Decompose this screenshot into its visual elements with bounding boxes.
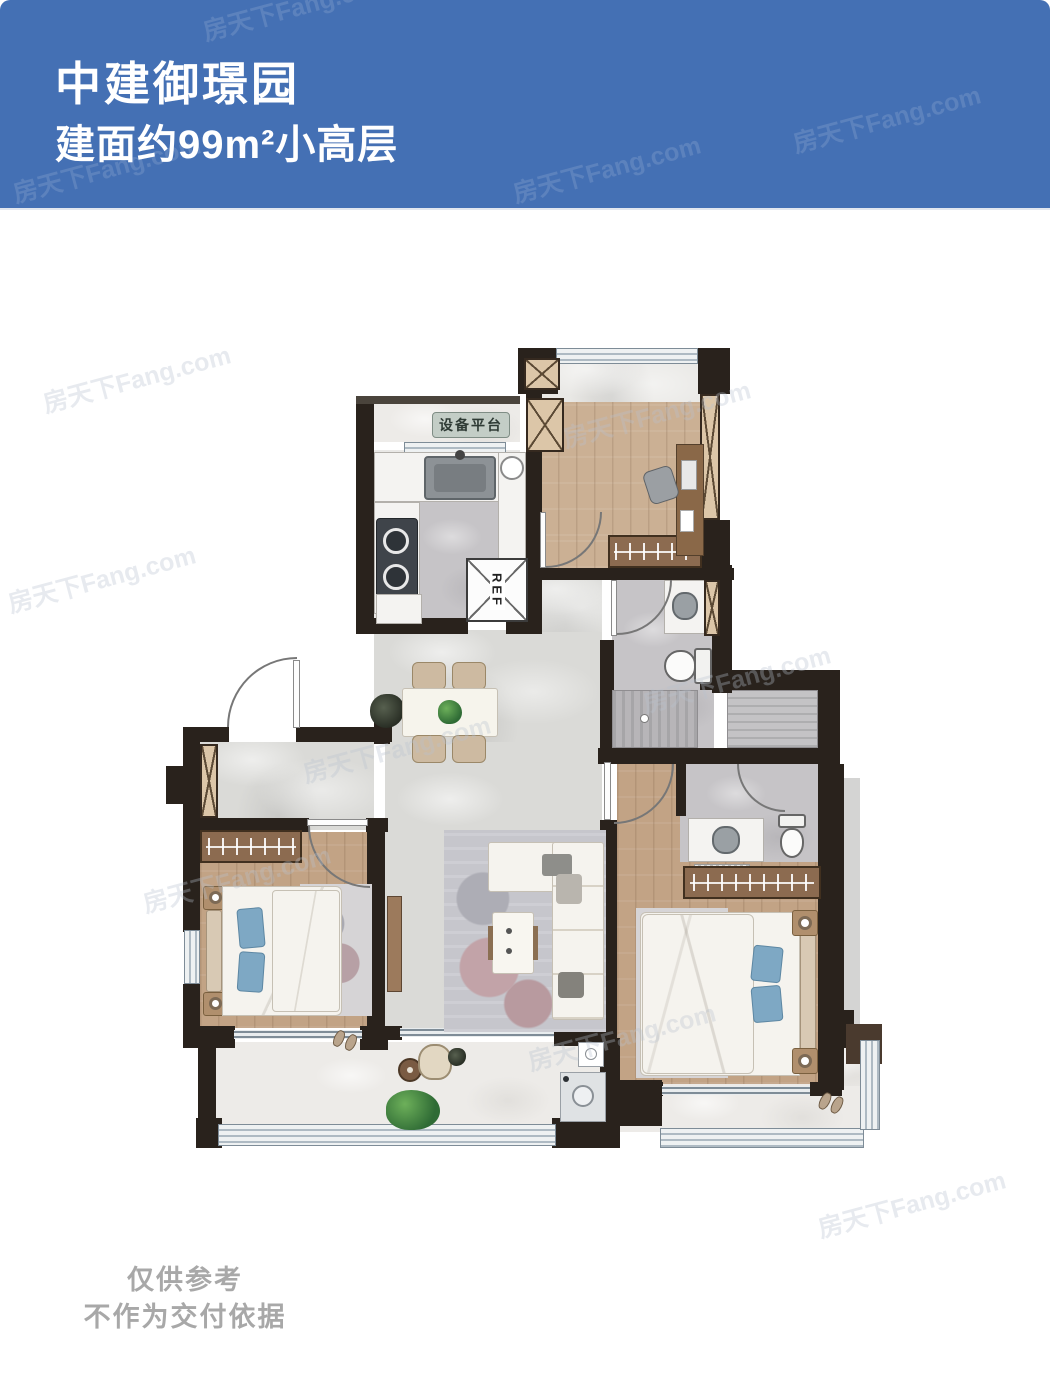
floor-plan: 设备平台 REF xyxy=(0,0,1050,1400)
shower-area xyxy=(612,690,698,748)
study-cabinet-left-lower xyxy=(526,398,564,452)
wall-bedroom1-left-lower xyxy=(183,984,200,1030)
balcony-large-plant xyxy=(386,1090,440,1130)
utility-deck-floor xyxy=(727,690,818,748)
kitchen-small-sink xyxy=(500,456,524,480)
coffee-table-side-left xyxy=(488,926,493,960)
stove-burner-2 xyxy=(383,564,409,590)
disclaimer: 仅供参考 不作为交付依据 xyxy=(50,1262,320,1336)
master-lamp-bottom xyxy=(798,1054,812,1068)
wall-bedroom1-bottom-left xyxy=(183,1026,235,1048)
wall-master-bottom-left xyxy=(617,1082,663,1096)
tv-console xyxy=(387,896,402,992)
ensuite-toilet-tank xyxy=(778,814,806,828)
study-baywindow-floor xyxy=(540,362,700,402)
wall-mid-horizontal xyxy=(598,748,840,764)
bedroom1-pillow-2 xyxy=(237,951,266,993)
coffee-table-knob-1 xyxy=(506,928,512,934)
window-study-top xyxy=(556,348,698,364)
sofa-tray xyxy=(542,854,572,876)
ensuite-vanity-sink xyxy=(712,826,740,854)
fridge-label: REF xyxy=(490,571,505,610)
study-desk-monitor xyxy=(681,460,697,490)
study-cabinet-left-upper xyxy=(524,358,560,390)
dining-chair-3 xyxy=(412,735,446,763)
balcony-table-dot xyxy=(407,1067,413,1073)
kitchen-cabinet-bottom-left xyxy=(376,594,422,624)
wall-master-right-band xyxy=(844,778,860,1028)
shower-drain xyxy=(640,714,649,723)
coffee-table-knob-2 xyxy=(506,948,512,954)
sliding-door-master-balcony xyxy=(662,1086,810,1095)
bedroom1-door-leaf xyxy=(307,819,368,826)
kitchen-faucet xyxy=(455,450,465,460)
master-lamp-top xyxy=(798,916,812,930)
fridge: REF xyxy=(466,558,528,622)
bedroom1-lamp-bottom xyxy=(209,997,222,1010)
toilet-bowl xyxy=(664,650,696,682)
bathroom-linen-cabinet xyxy=(704,580,720,636)
sofa-cushion-1 xyxy=(556,874,582,904)
study-desk-paper xyxy=(680,510,694,532)
equipment-platform-label-text: 设备平台 xyxy=(439,415,503,435)
window-right-balcony-bottom xyxy=(660,1128,864,1148)
master-pillow-2 xyxy=(750,985,783,1023)
bedroom1-lamp-top xyxy=(209,891,222,904)
disclaimer-line2: 不作为交付依据 xyxy=(50,1299,320,1336)
balcony-lounge-chair xyxy=(418,1044,452,1080)
disclaimer-line1: 仅供参考 xyxy=(50,1262,320,1299)
bedroom1-wardrobe xyxy=(200,830,302,863)
kitchen-sink-basin xyxy=(434,464,486,492)
master-wardrobe xyxy=(683,866,821,899)
window-left-balcony xyxy=(218,1124,556,1146)
washing-machine-door xyxy=(572,1085,594,1107)
coffee-table xyxy=(492,912,534,974)
wall-kitchen-left xyxy=(356,404,374,634)
bathroom-vanity-sink xyxy=(672,592,698,620)
dining-chair-2 xyxy=(452,662,486,690)
master-pillow-1 xyxy=(750,945,784,984)
master-door-leaf xyxy=(604,762,611,820)
wall-study-top-right xyxy=(698,348,730,394)
bedroom1-duvet xyxy=(272,890,340,1012)
entry-door-swing xyxy=(227,657,297,727)
corridor-floor xyxy=(536,578,602,632)
bedroom1-pillow-1 xyxy=(236,907,265,949)
coffee-table-side-right xyxy=(533,926,538,960)
floorplan-page: { "header": { "title": "中建御璟园", "subtitl… xyxy=(0,0,1050,1400)
wall-study-bottom xyxy=(536,568,734,580)
entry-cabinet xyxy=(200,744,218,818)
bedroom1-headboard xyxy=(206,910,222,992)
ensuite-toilet-bowl xyxy=(780,828,804,858)
sofa-cushion-2 xyxy=(558,972,584,998)
washing-machine-button xyxy=(563,1076,569,1082)
entry-floor xyxy=(200,742,374,830)
window-bedroom1-left xyxy=(184,930,200,984)
stove-burner-1 xyxy=(383,528,409,554)
wall-platform-top xyxy=(356,396,520,404)
dining-chair-1 xyxy=(412,662,446,690)
dining-chair-4 xyxy=(452,735,486,763)
wall-entry-left-of-door xyxy=(183,727,229,742)
wall-entry-notch xyxy=(166,766,183,804)
dining-table-plant xyxy=(438,700,462,724)
master-duvet xyxy=(642,914,754,1074)
wall-leftbalcony-left xyxy=(198,1046,216,1122)
water-heater-dial xyxy=(585,1048,597,1060)
equipment-platform-label: 设备平台 xyxy=(432,412,510,438)
wall-ensuite-divider xyxy=(676,764,686,816)
wall-bedroom1-left-upper xyxy=(183,832,200,932)
toilet-tank xyxy=(694,648,712,684)
window-right-balcony-right xyxy=(860,1040,880,1130)
